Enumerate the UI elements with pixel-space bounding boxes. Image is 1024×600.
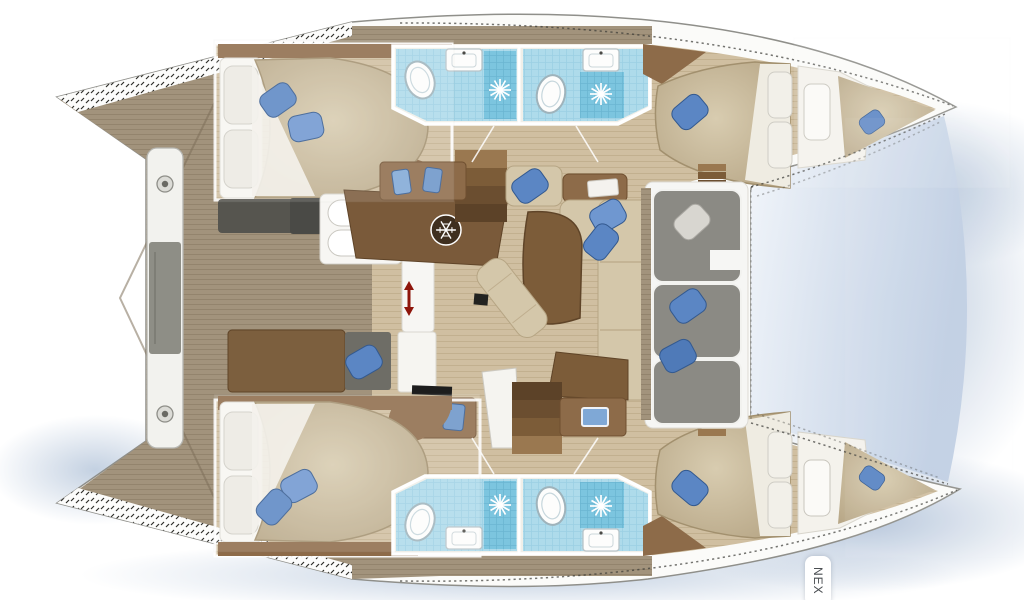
bench-notch — [710, 250, 742, 270]
next-button[interactable]: NEX — [805, 556, 831, 600]
sink — [583, 529, 619, 551]
side-table-port — [563, 174, 627, 202]
aft-berth — [228, 330, 452, 396]
companionway-stairs-starboard — [512, 382, 562, 454]
white-pillow — [768, 122, 792, 168]
seat-pad — [149, 242, 181, 354]
floorplan-canvas — [0, 0, 1024, 600]
remote — [474, 293, 489, 305]
stove — [290, 198, 322, 234]
lounge-cushion — [506, 166, 562, 207]
vanity-desk-starboard-right — [560, 398, 626, 436]
white-pillow — [768, 432, 792, 478]
aft-crossbeam — [147, 148, 183, 448]
forward-cockpit — [641, 182, 748, 428]
bolt-circle-icon — [157, 406, 173, 422]
screen — [582, 408, 608, 426]
bolt-circle-icon — [157, 176, 173, 192]
starboard-head-2 — [523, 479, 648, 551]
white-pillow — [768, 482, 792, 528]
book — [587, 179, 618, 198]
white-pillow — [804, 460, 830, 516]
white-pillow — [768, 72, 792, 118]
white-panel — [398, 332, 436, 392]
port-head-2 — [523, 49, 648, 121]
yacht-floorplan-image: NEX — [0, 0, 1024, 600]
gray-bench — [653, 190, 742, 424]
sink — [583, 49, 619, 71]
berth-brown — [228, 330, 345, 392]
